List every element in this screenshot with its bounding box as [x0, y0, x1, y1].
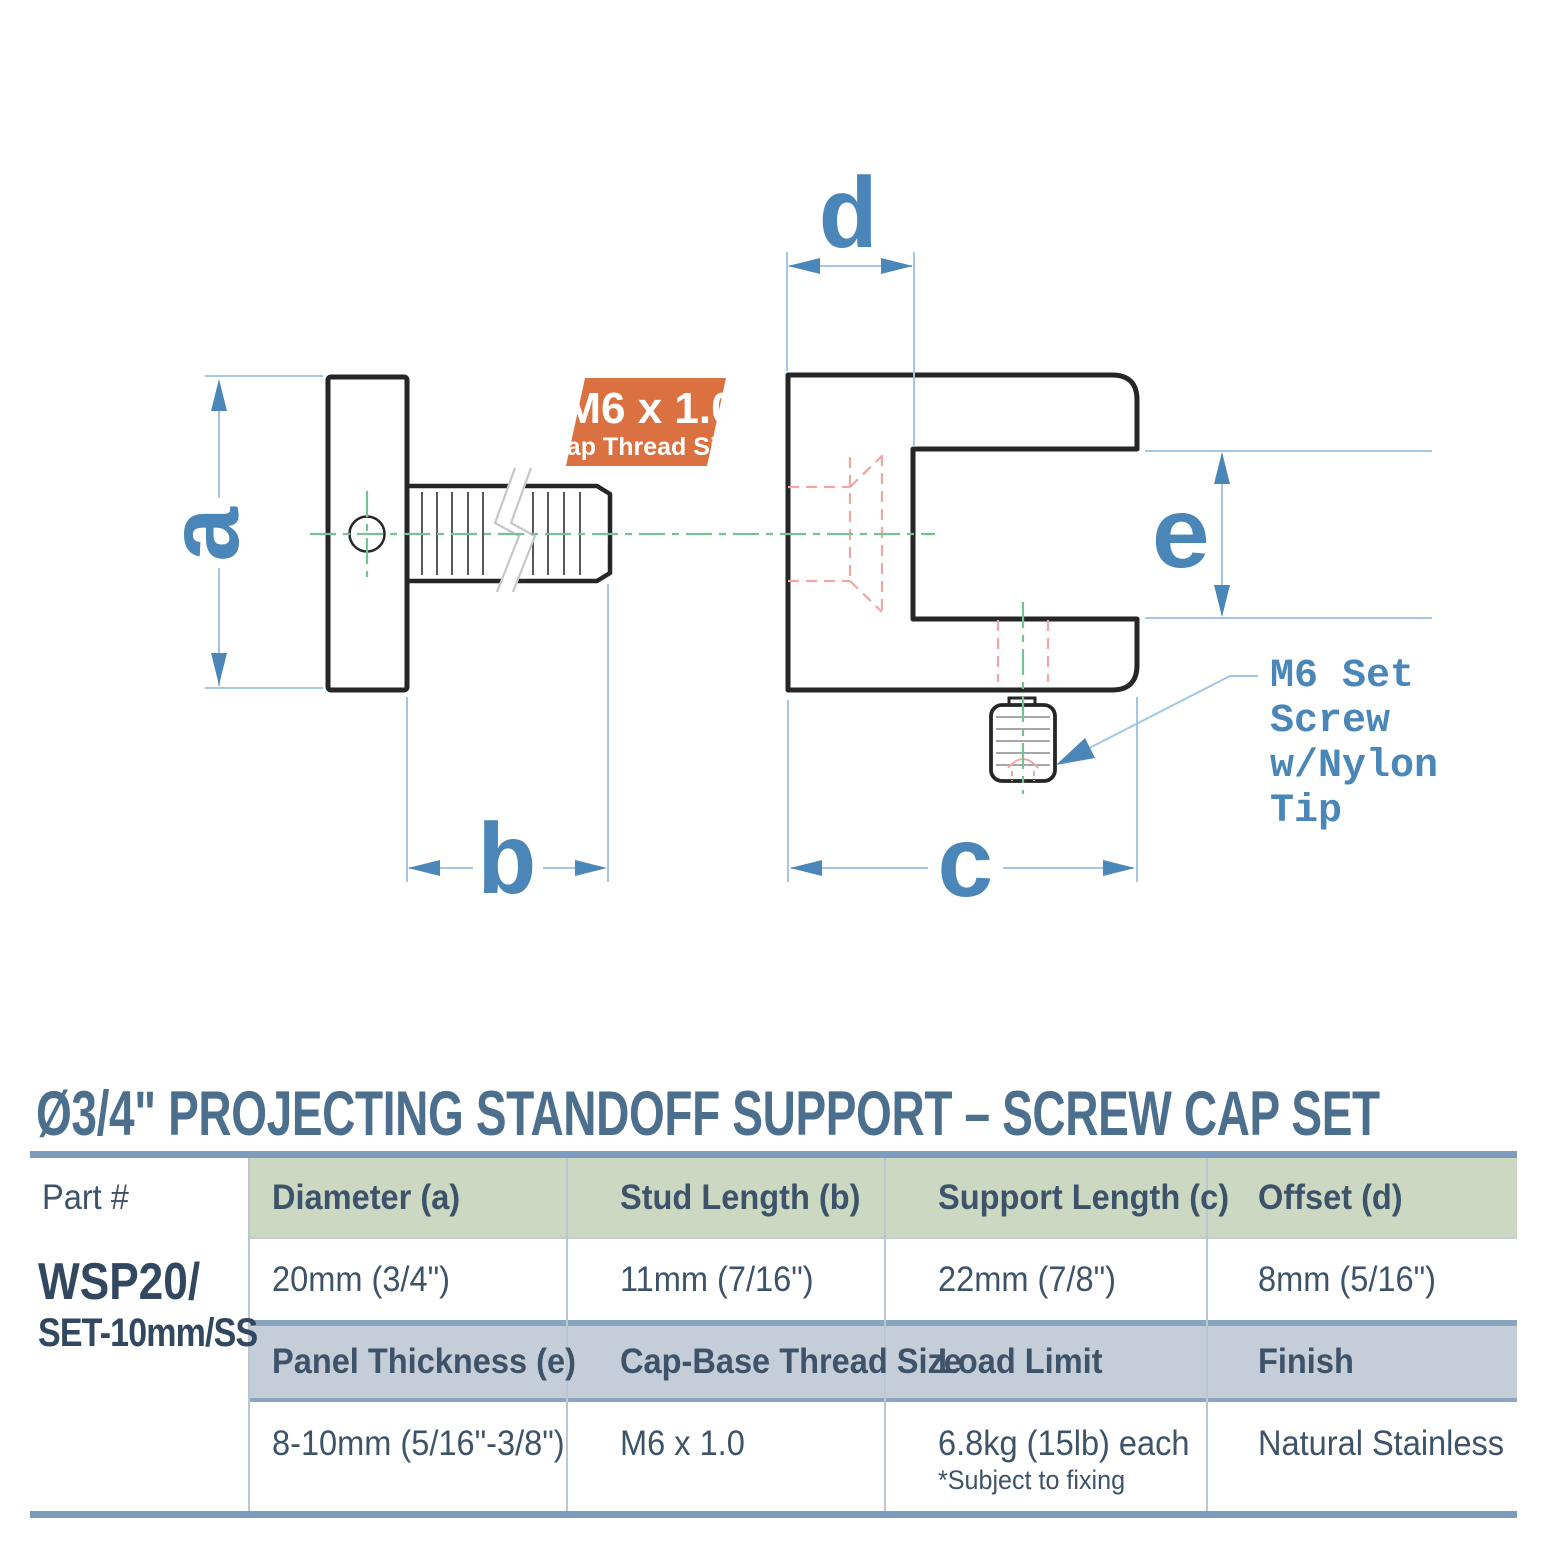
spec-table: Part # WSP20/ SET-10mm/SS Diameter (a) S…	[30, 1158, 1517, 1511]
dim-label-e: e	[1151, 485, 1211, 598]
load-limit-value: 6.8kg (15lb) each	[938, 1424, 1190, 1464]
header-thread-size: Cap-Base Thread Size	[620, 1326, 962, 1398]
value-stud-length: 11mm (7/16")	[620, 1239, 814, 1320]
value-diameter: 20mm (3/4")	[272, 1239, 450, 1320]
header-stud-length: Stud Length (b)	[620, 1158, 860, 1237]
technical-drawing: a b c d e M6 x 1.0 Cap Thread Size M6 Se…	[0, 0, 1541, 1060]
value-offset: 8mm (5/16")	[1258, 1239, 1436, 1320]
note-line-2: Screw	[1270, 699, 1390, 744]
support-body	[788, 375, 1137, 690]
thread-size-badge: M6 x 1.0 Cap Thread Size	[549, 378, 744, 466]
value-finish: Natural Stainless	[1258, 1424, 1504, 1464]
note-line-3: w/Nylon	[1270, 744, 1438, 789]
page-title: Ø3/4" PROJECTING STANDOFF SUPPORT – SCRE…	[36, 1078, 1380, 1150]
part-number-line1: WSP20/	[38, 1254, 257, 1310]
dim-label-c: c	[936, 814, 996, 927]
part-number: WSP20/ SET-10mm/SS	[38, 1254, 257, 1356]
table-top-rule	[30, 1151, 1517, 1158]
value-panel-thickness: 8-10mm (5/16"-3/8")	[272, 1424, 565, 1464]
load-limit-footnote: *Subject to fixing	[938, 1464, 1190, 1496]
spec-sheet: a b c d e M6 x 1.0 Cap Thread Size M6 Se…	[0, 0, 1541, 1542]
part-column: Part # WSP20/ SET-10mm/SS	[30, 1158, 250, 1511]
dimension-letters: a b c d e	[156, 165, 1211, 927]
badge-caption: Cap Thread Size	[549, 433, 744, 461]
header-finish: Finish	[1258, 1326, 1354, 1398]
value-load-limit: 6.8kg (15lb) each *Subject to fixing	[938, 1424, 1190, 1496]
note-line-1: M6 Set	[1270, 654, 1414, 699]
header-diameter: Diameter (a)	[272, 1158, 460, 1237]
value-support-length: 22mm (7/8")	[938, 1239, 1116, 1320]
dim-label-a: a	[156, 504, 269, 564]
cap-stud	[407, 468, 610, 592]
set-screw-note: M6 Set Screw w/Nylon Tip	[1270, 654, 1438, 834]
part-number-line2: SET-10mm/SS	[38, 1310, 257, 1356]
header-panel-thickness: Panel Thickness (e)	[272, 1326, 576, 1398]
header-load-limit: Load Limit	[938, 1326, 1103, 1398]
note-line-4: Tip	[1270, 789, 1342, 834]
table-bottom-rule	[30, 1511, 1517, 1518]
value-thread-size: M6 x 1.0	[620, 1424, 745, 1464]
header-offset: Offset (d)	[1258, 1158, 1403, 1237]
dim-label-b: b	[477, 811, 537, 924]
badge-thread-size: M6 x 1.0	[564, 384, 735, 433]
dim-label-d: d	[818, 165, 878, 278]
header-support-length: Support Length (c)	[938, 1158, 1229, 1237]
part-header: Part #	[42, 1158, 129, 1237]
